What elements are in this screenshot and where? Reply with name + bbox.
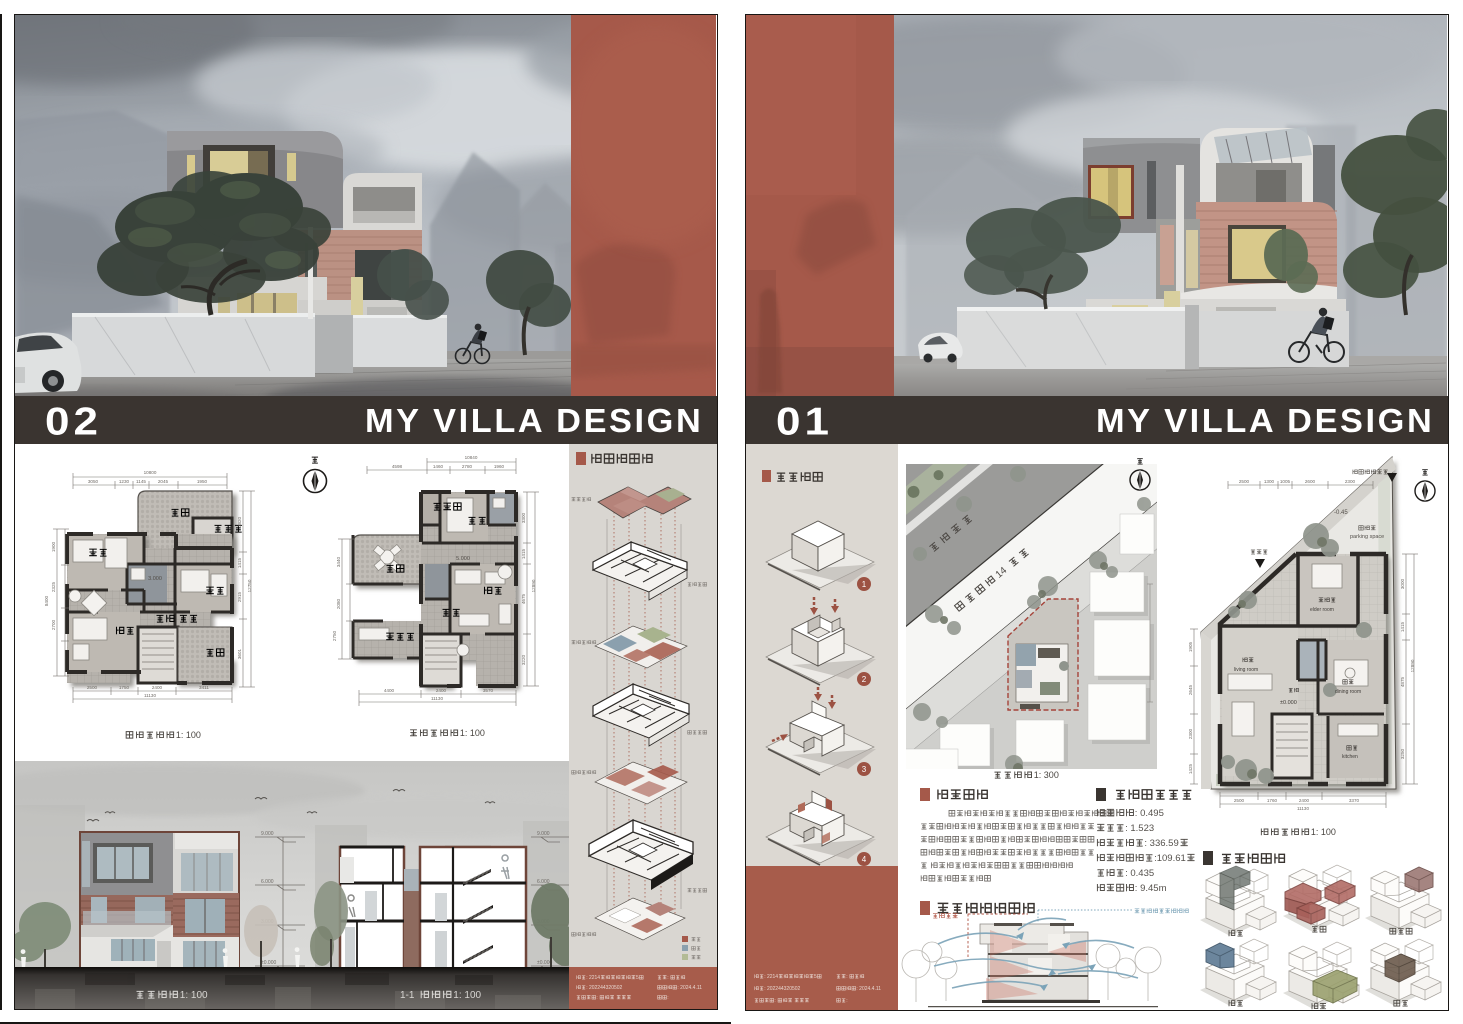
- svg-text:1415: 1415: [237, 557, 242, 568]
- svg-text:: 2024.4.11: : 2024.4.11: [856, 986, 881, 992]
- svg-text:1950: 1950: [197, 479, 208, 484]
- svg-text:9.000: 9.000: [261, 831, 274, 837]
- svg-text:1300: 1300: [1264, 479, 1275, 484]
- svg-text:1415: 1415: [521, 548, 526, 559]
- svg-text:10840: 10840: [465, 455, 478, 460]
- svg-text:3820: 3820: [237, 516, 242, 527]
- svg-text:±0.000: ±0.000: [1280, 700, 1297, 706]
- svg-text:2400: 2400: [152, 685, 163, 690]
- svg-text:3440: 3440: [336, 556, 341, 567]
- svg-text:2780: 2780: [462, 464, 473, 469]
- svg-text:1005: 1005: [1280, 479, 1291, 484]
- svg-text:2080: 2080: [336, 598, 341, 609]
- svg-text:4598: 4598: [392, 464, 403, 469]
- svg-text:: 0.435: : 0.435: [1125, 868, 1154, 879]
- svg-text:-0.45: -0.45: [1334, 510, 1348, 516]
- svg-text:2645: 2645: [1188, 684, 1193, 695]
- svg-text:2500: 2500: [1239, 479, 1250, 484]
- svg-text:2915: 2915: [237, 591, 242, 602]
- svg-text:1: 100: 1: 100: [460, 728, 485, 738]
- svg-text:1760: 1760: [1267, 798, 1278, 803]
- svg-text:1145: 1145: [136, 479, 146, 484]
- svg-text::: :: [846, 974, 847, 980]
- svg-text:living room: living room: [1234, 667, 1258, 673]
- svg-text:1: 100: 1: 100: [453, 990, 481, 1001]
- svg-text::: :: [846, 998, 847, 1004]
- svg-text:1: 300: 1: 300: [1034, 770, 1059, 780]
- svg-text:dining room: dining room: [1335, 689, 1361, 695]
- svg-text:6.000: 6.000: [261, 879, 274, 885]
- svg-text:3300: 3300: [521, 512, 526, 523]
- svg-text:3570: 3570: [483, 688, 494, 693]
- svg-text:12890: 12890: [1410, 659, 1415, 672]
- svg-text:±0.000: ±0.000: [261, 960, 276, 966]
- svg-text:2045: 2045: [158, 479, 169, 484]
- svg-text:1: 1: [862, 580, 867, 589]
- svg-text:2600: 2600: [1305, 479, 1316, 484]
- svg-text:1425: 1425: [1188, 763, 1193, 774]
- svg-text:elder room: elder room: [1310, 607, 1334, 613]
- svg-text:: 336.59: : 336.59: [1144, 838, 1178, 849]
- svg-text:1-1: 1-1: [400, 990, 415, 1001]
- svg-text:11130: 11130: [1297, 806, 1310, 811]
- svg-text:2325: 2325: [51, 581, 56, 592]
- svg-text:: 2214: : 2214: [764, 974, 778, 980]
- svg-text::: :: [667, 975, 668, 981]
- svg-text:4875: 4875: [1400, 676, 1405, 687]
- svg-text:: 0.495: : 0.495: [1135, 808, 1164, 819]
- svg-text:1900: 1900: [51, 541, 56, 552]
- svg-text:4: 4: [862, 855, 867, 864]
- svg-text:: 202244320502: : 202244320502: [764, 986, 800, 992]
- svg-text:2700: 2700: [51, 619, 56, 630]
- svg-text:3050: 3050: [88, 479, 99, 484]
- svg-text:1750: 1750: [119, 685, 130, 690]
- svg-text:1415: 1415: [1400, 621, 1405, 632]
- svg-text:2400: 2400: [1299, 798, 1310, 803]
- svg-text:3370: 3370: [1349, 798, 1360, 803]
- svg-text:1960: 1960: [494, 464, 505, 469]
- svg-text:5: 5: [636, 975, 639, 981]
- svg-text:8400: 8400: [44, 595, 49, 606]
- svg-text:1: 100: 1: 100: [1311, 827, 1336, 837]
- svg-text:4675: 4675: [521, 593, 526, 604]
- svg-text:12750: 12750: [247, 579, 252, 592]
- svg-text::109.61: :109.61: [1154, 853, 1186, 864]
- svg-text:11130: 11130: [431, 696, 444, 701]
- svg-text:4400: 4400: [384, 688, 395, 693]
- svg-text:1905: 1905: [1188, 641, 1193, 652]
- svg-text:: 1.523: : 1.523: [1125, 823, 1154, 834]
- svg-text:3000: 3000: [1400, 578, 1405, 589]
- svg-text:2500: 2500: [87, 685, 98, 690]
- svg-text:12890: 12890: [531, 579, 536, 592]
- svg-text::: :: [596, 995, 597, 1001]
- svg-text:3: 3: [862, 765, 867, 774]
- svg-text:2400: 2400: [436, 688, 447, 693]
- svg-text:: 2024.4.11: : 2024.4.11: [677, 985, 702, 991]
- svg-text:3601: 3601: [237, 648, 242, 659]
- svg-text:1230: 1230: [119, 479, 130, 484]
- svg-text:3.000: 3.000: [148, 576, 162, 582]
- svg-text:: 202244320502: : 202244320502: [586, 985, 622, 991]
- svg-text:1460: 1460: [433, 464, 444, 469]
- svg-text:2: 2: [862, 675, 867, 684]
- svg-text:3250: 3250: [1400, 748, 1405, 759]
- svg-text::: :: [667, 995, 668, 1001]
- svg-text:parking space: parking space: [1350, 534, 1384, 540]
- svg-text:3220: 3220: [521, 654, 526, 665]
- svg-text::: :: [774, 998, 775, 1004]
- svg-text:1: 100: 1: 100: [176, 730, 201, 740]
- svg-text:9.000: 9.000: [537, 831, 550, 837]
- svg-text:2500: 2500: [1234, 798, 1245, 803]
- svg-text:kitchen: kitchen: [1342, 754, 1358, 760]
- svg-text:5: 5: [814, 974, 817, 980]
- svg-text:3411: 3411: [199, 685, 209, 690]
- svg-text:2300: 2300: [1345, 479, 1356, 484]
- svg-text:2750: 2750: [332, 630, 337, 641]
- svg-text:11130: 11130: [144, 693, 157, 698]
- svg-text:5.000: 5.000: [456, 556, 470, 562]
- svg-text:: 2214: : 2214: [586, 975, 600, 981]
- svg-text:1: 100: 1: 100: [180, 990, 208, 1001]
- svg-text:2300: 2300: [1188, 728, 1193, 739]
- svg-text:: 9.45m: : 9.45m: [1135, 883, 1167, 894]
- svg-text:10800: 10800: [144, 470, 157, 475]
